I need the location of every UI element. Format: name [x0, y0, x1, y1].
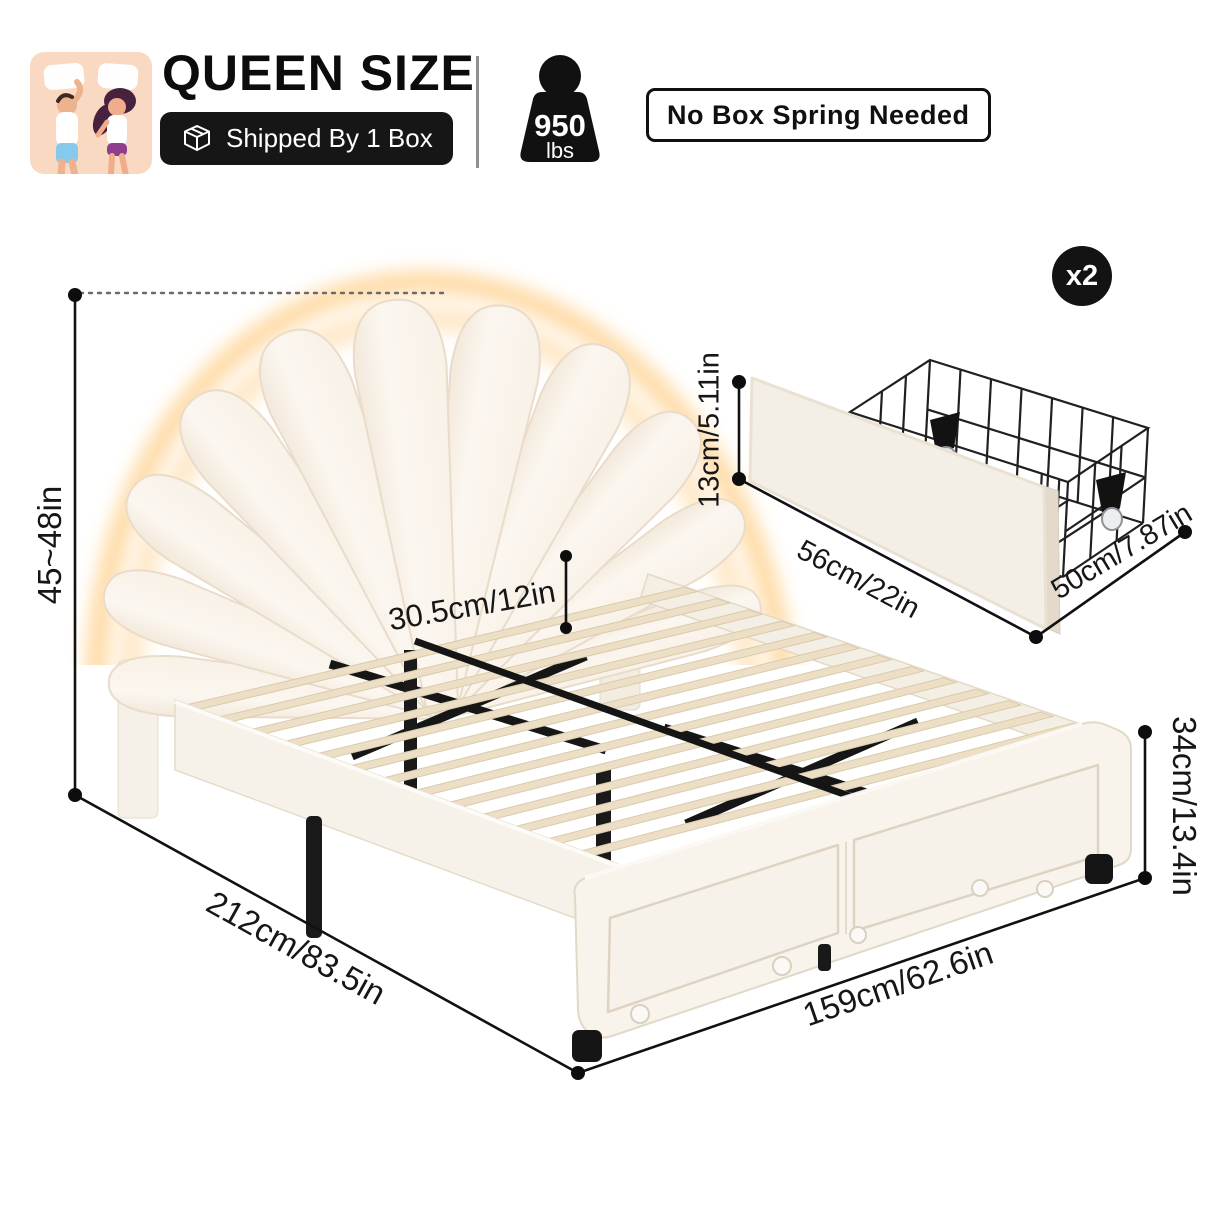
drawer-height-label: 13cm/5.11in [694, 352, 727, 508]
footboard-height-label: 34cm/13.4in [1165, 716, 1203, 896]
bed-height-label: 45~48in [31, 486, 69, 604]
bed-illustration [0, 0, 1214, 1214]
front-left-leg [306, 816, 322, 938]
product-infographic: QUEEN SIZE Shipped By 1 Box 950 lbs No B… [0, 0, 1214, 1214]
headboard [60, 259, 778, 776]
